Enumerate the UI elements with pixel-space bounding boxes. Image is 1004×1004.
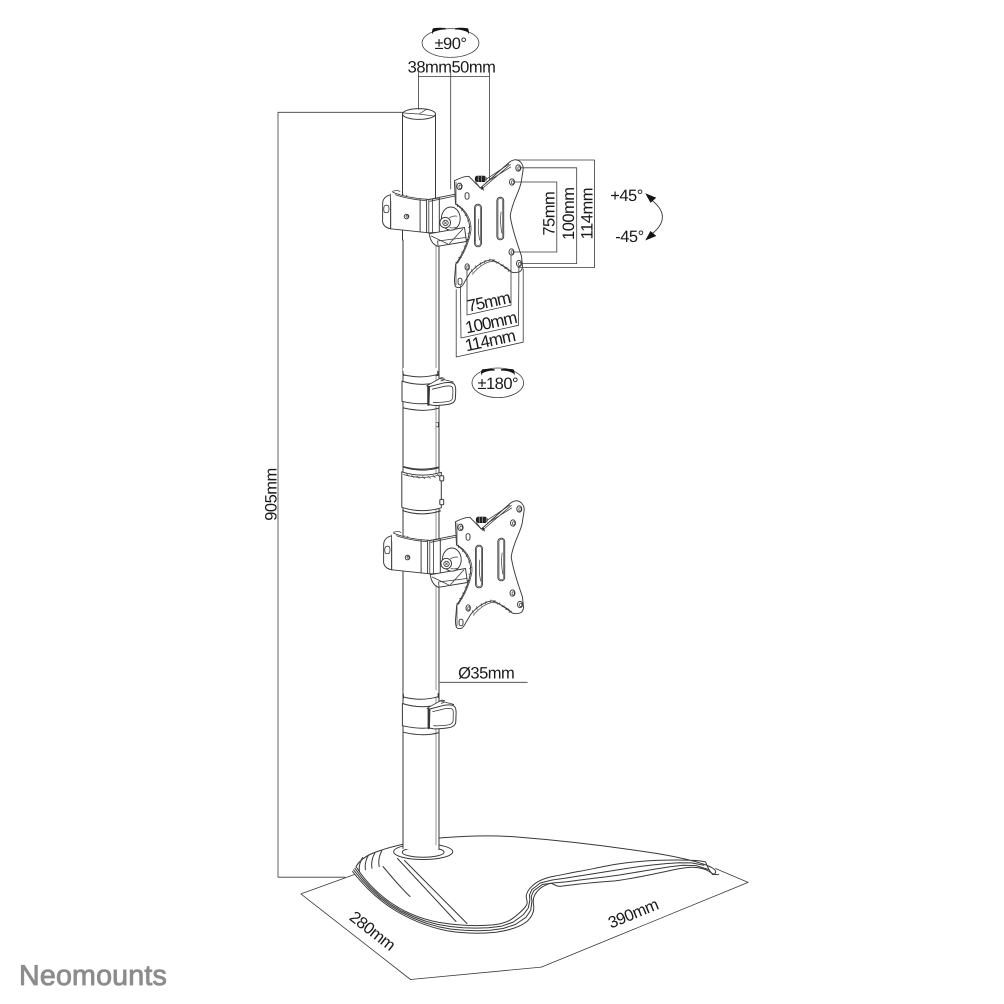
svg-text:+45°: +45° bbox=[610, 187, 643, 205]
svg-text:100mm: 100mm bbox=[560, 187, 578, 240]
svg-text:114mm: 114mm bbox=[578, 188, 596, 239]
svg-text:75mm: 75mm bbox=[541, 192, 559, 236]
svg-text:±180°: ±180° bbox=[477, 375, 518, 393]
svg-text:38mm50mm: 38mm50mm bbox=[408, 59, 496, 77]
svg-text:±90°: ±90° bbox=[434, 35, 466, 53]
svg-text:Ø35mm: Ø35mm bbox=[458, 665, 514, 683]
svg-text:-45°: -45° bbox=[615, 228, 643, 246]
svg-text:Neomounts: Neomounts bbox=[19, 960, 167, 992]
svg-text:905mm: 905mm bbox=[262, 468, 280, 521]
